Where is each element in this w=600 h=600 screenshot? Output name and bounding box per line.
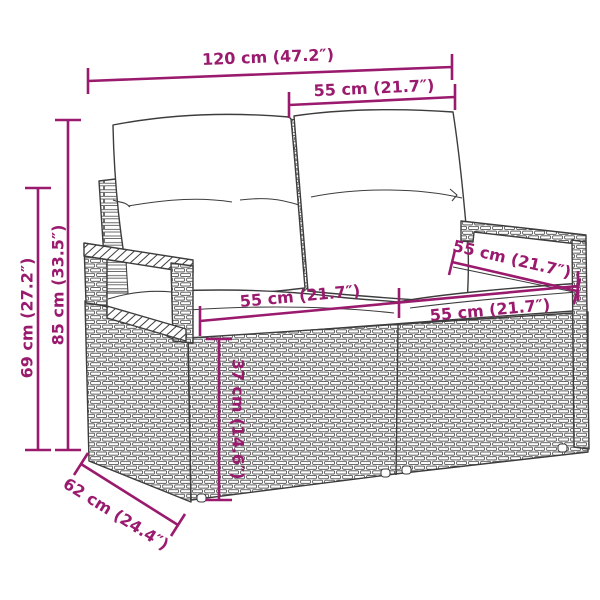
right-armrest-column bbox=[572, 240, 589, 449]
dim-armrest-height-label: 69 cm (27.2″) bbox=[18, 258, 37, 379]
dim-overall-height: 85 cm (33.5″) bbox=[49, 120, 82, 450]
product-dimension-diagram: 120 cm (47.2″) 55 cm (21.7″) 85 cm (33.5… bbox=[0, 0, 600, 600]
dim-overall-width-label: 120 cm (47.2″) bbox=[202, 45, 335, 69]
dim-base-height-label: 37 cm (14.6″) bbox=[229, 359, 248, 480]
dim-armrest-height: 69 cm (27.2″) bbox=[18, 188, 52, 450]
dim-backrest-width-label: 55 cm (21.7″) bbox=[313, 76, 435, 100]
dim-overall-height-label: 85 cm (33.5″) bbox=[49, 225, 68, 346]
right-back-cushion bbox=[294, 110, 468, 304]
